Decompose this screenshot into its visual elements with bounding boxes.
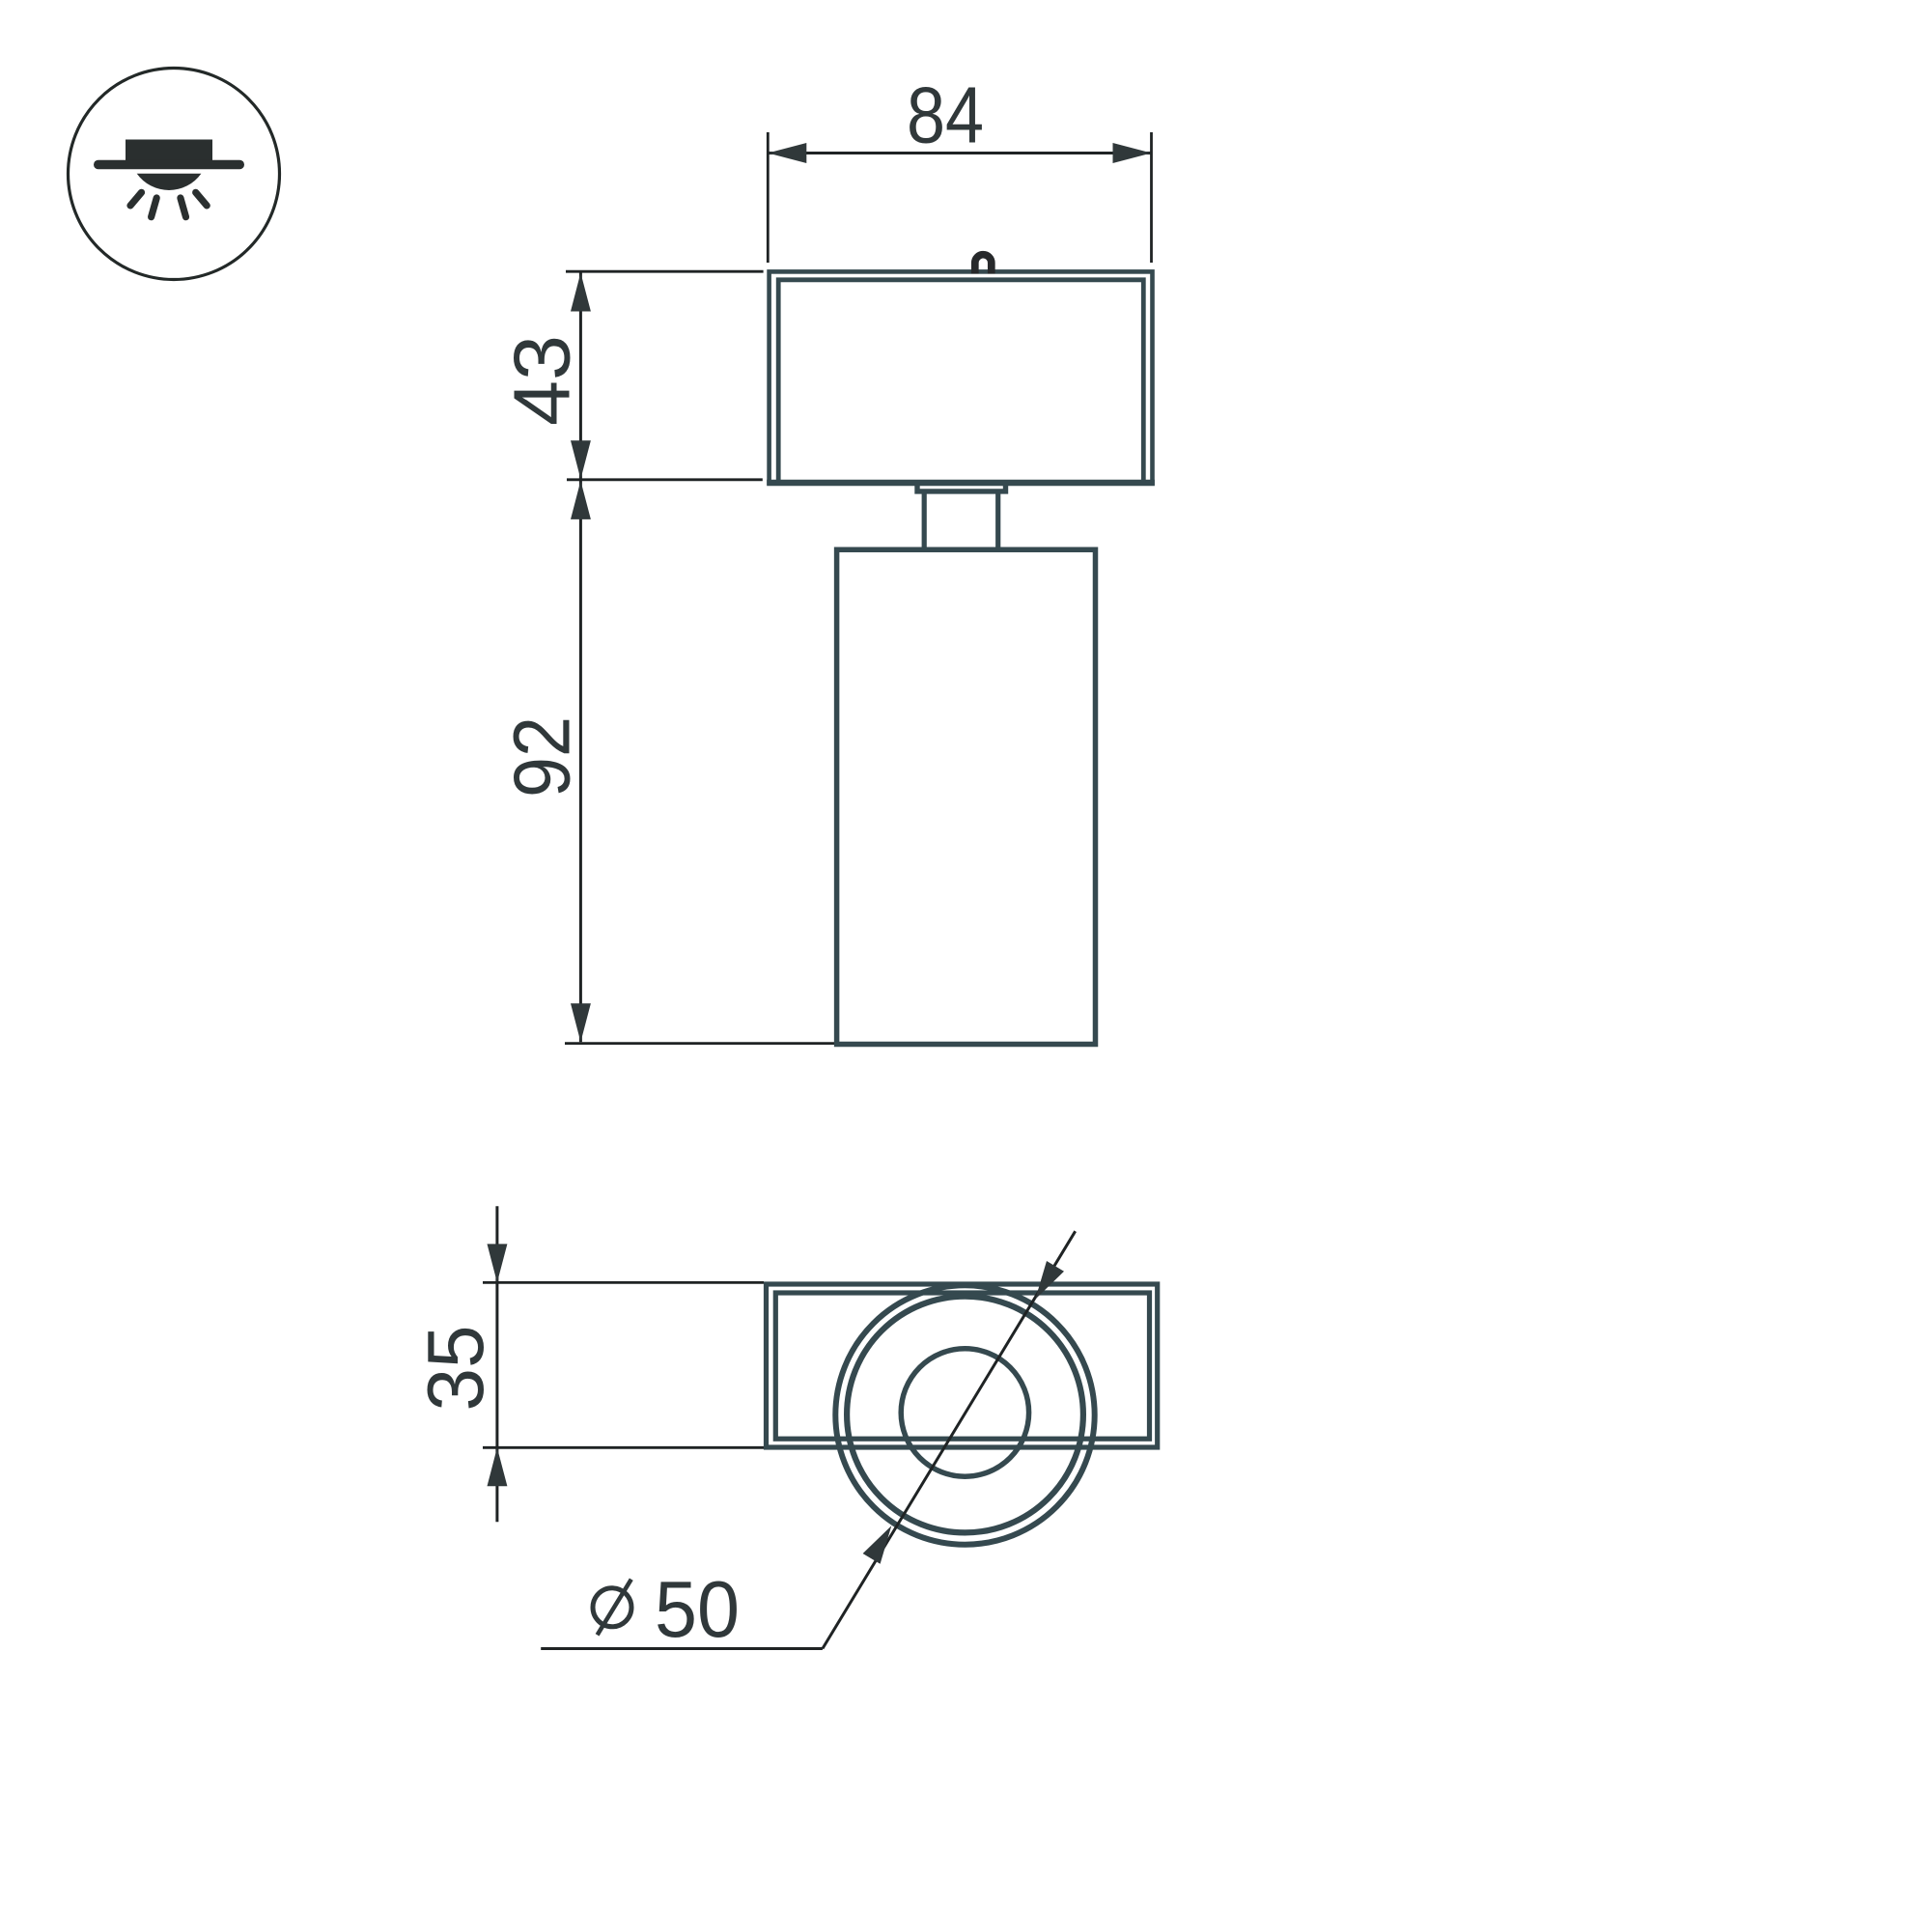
svg-text:50: 50	[655, 1564, 740, 1654]
svg-text:92: 92	[496, 716, 586, 798]
svg-text:35: 35	[410, 1326, 500, 1412]
svg-text:43: 43	[496, 335, 586, 426]
svg-text:84: 84	[907, 70, 984, 160]
